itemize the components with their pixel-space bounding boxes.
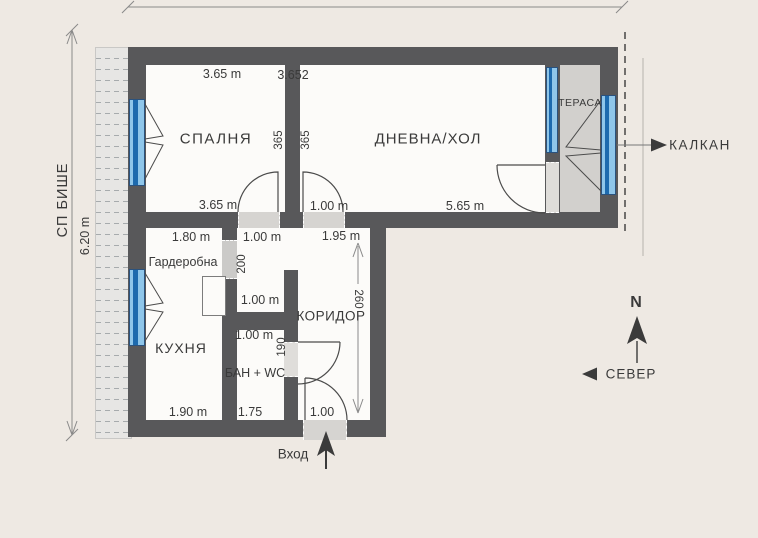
kitchen-label: КУХНЯ [155,340,207,356]
bedroom-door-opening [238,212,280,228]
dim-passage-top: 1.00 m [243,230,281,244]
living-label: ДНЕВНА/ХОЛ [375,131,482,148]
top-dimension-line [122,1,628,13]
sever-arrow-icon [582,368,597,381]
dim-bedroom-side: 365 [273,130,285,149]
corridor-label: КОРИДОР [296,309,365,324]
terrace-label: ТЕРАСА [558,97,602,109]
kitchen-window [129,269,145,346]
adjacent-strip-hatch [95,47,132,439]
dim-bath-bottom: 1.75 [238,405,262,419]
side-strip-label: СП БИШЕ [55,163,71,238]
wall-top [128,47,618,65]
dim-bath-side: 190 [276,337,288,356]
wall-bedroom-living [285,65,300,214]
dim-passage-bottom: 1.00 m [241,293,279,307]
built-in-cabinet [202,276,226,316]
dim-divider-top: 3.652 [277,68,308,82]
dim-living-door: 1.00 m [310,199,348,213]
north-arrow-icon [627,316,647,344]
wall-right-lower [370,228,386,437]
living-terrace-window [546,67,558,153]
side-strip-length-label: 6.20 m [78,217,92,255]
terrace-outer-window [601,95,616,195]
dim-entrance-width: 1.00 [310,405,334,419]
dim-living-side: 365 [300,130,312,149]
bedroom-window [129,99,145,186]
dim-living-bottom: 5.65 m [446,199,484,213]
sever-label: СЕВЕР [606,367,657,382]
kalkan-arrow-icon [651,139,667,152]
entrance-door-opening [303,420,347,440]
bedroom-label: СПАЛНЯ [180,131,252,148]
dim-kitchen-bottom: 1.90 m [169,405,207,419]
dim-bath-top: 1.00 m [235,328,273,342]
floor-plan: СПАЛНЯ ДНЕВНА/ХОЛ ТЕРАСА КУХНЯ Гардеробн… [0,0,758,538]
entrance-label: Вход [278,447,309,462]
terrace-floor [558,65,602,212]
dim-corridor-length: 260 [352,287,364,310]
living-door-opening [303,212,345,228]
wall-bottom [128,420,386,437]
wardrobe-passage-opening [222,240,237,279]
dim-bedroom-bottom: 3.65 m [199,198,237,212]
bathroom-label: БАН + WC [225,366,285,380]
dim-bedroom-top: 3.65 m [203,67,241,81]
dim-corridor-top: 1.95 m [322,229,360,243]
wall-middle [128,212,618,228]
wardrobe-label: Гардеробна [149,255,218,269]
terrace-door-opening [546,162,559,213]
dim-passage-length: 200 [236,254,248,273]
kalkan-label: КАЛКАН [669,138,731,153]
north-letter-label: N [630,294,642,312]
dim-wardrobe-top: 1.80 m [172,230,210,244]
